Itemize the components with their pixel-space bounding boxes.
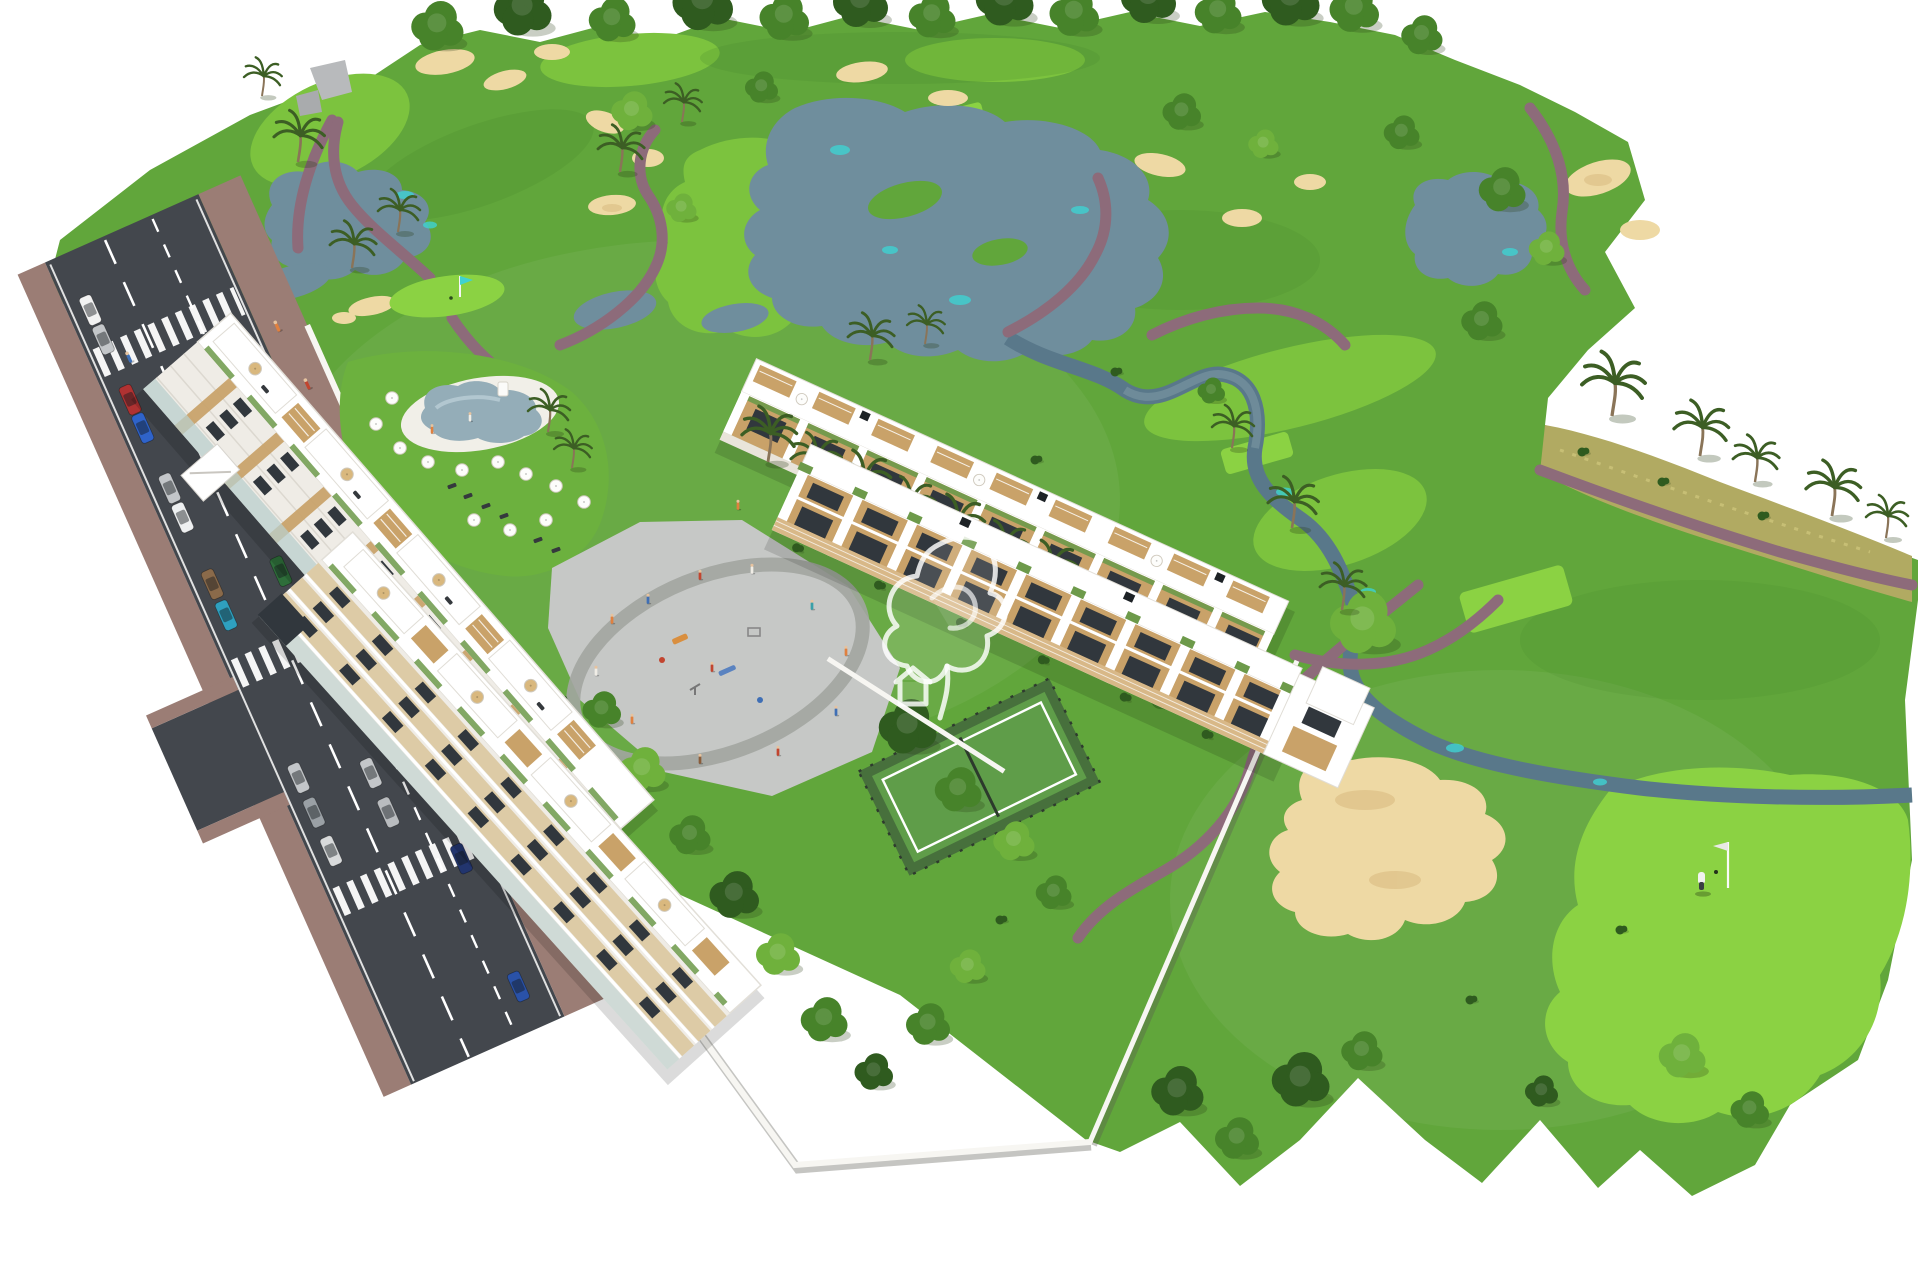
- umbrella-icon: [456, 464, 469, 477]
- umbrella-icon: [540, 514, 553, 527]
- playground-spring-toy: [757, 697, 763, 703]
- bunker: [534, 44, 570, 60]
- umbrella-icon: [422, 456, 435, 469]
- umbrella-icon: [504, 524, 517, 537]
- palm-icon: [1733, 435, 1779, 488]
- scene-canvas: [0, 0, 1920, 1280]
- golfer-shadow: [1695, 891, 1711, 896]
- bunker: [1294, 174, 1326, 190]
- bunker: [332, 312, 356, 324]
- palm-icon: [1806, 460, 1861, 522]
- umbrella-icon: [386, 392, 399, 405]
- tree-icon: [673, 0, 738, 31]
- umbrella-icon: [468, 514, 481, 527]
- palm-icon: [1866, 495, 1908, 543]
- umbrella-icon: [394, 442, 407, 455]
- golf-ball: [1714, 870, 1718, 874]
- hole: [449, 296, 453, 300]
- palm-icon: [244, 57, 282, 100]
- green-bottom-right: [1545, 767, 1910, 1123]
- palm-icon: [1582, 352, 1645, 424]
- rough: [1520, 580, 1880, 700]
- bunker: [1620, 220, 1660, 240]
- tree-icon: [855, 1053, 896, 1090]
- bunker: [1222, 209, 1262, 227]
- umbrella-icon: [492, 456, 505, 469]
- playground-spring-toy: [659, 657, 665, 663]
- golfer-legs: [1699, 882, 1704, 890]
- umbrella-icon: [370, 418, 383, 431]
- bunker: [928, 90, 968, 106]
- palm-icon: [1674, 400, 1729, 462]
- tree-icon: [411, 1, 467, 51]
- tree-icon: [494, 0, 556, 37]
- umbrella-icon: [550, 480, 563, 493]
- aerial-render: [0, 0, 1920, 1280]
- umbrella-icon: [520, 468, 533, 481]
- pool-slide: [498, 382, 508, 396]
- umbrella-icon: [578, 496, 591, 509]
- tree-icon: [801, 997, 851, 1042]
